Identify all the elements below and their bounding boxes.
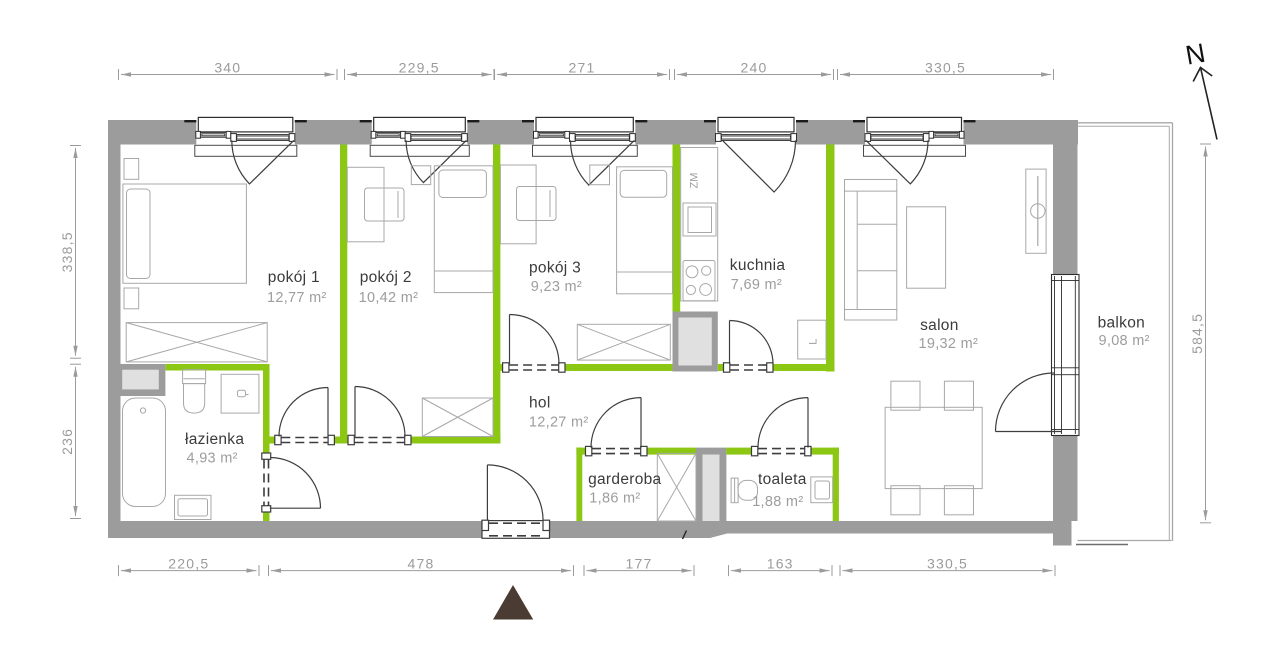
svg-text:12,27 m²: 12,27 m² bbox=[529, 415, 589, 431]
svg-text:salon: salon bbox=[920, 317, 959, 334]
svg-text:pokój 2: pokój 2 bbox=[360, 269, 412, 286]
svg-text:toaleta: toaleta bbox=[758, 471, 807, 488]
svg-text:9,23 m²: 9,23 m² bbox=[531, 279, 582, 295]
svg-text:478: 478 bbox=[408, 555, 435, 571]
svg-text:1,88 m²: 1,88 m² bbox=[752, 494, 803, 510]
svg-text:229,5: 229,5 bbox=[399, 59, 440, 75]
svg-text:łazienka: łazienka bbox=[185, 431, 244, 448]
svg-text:10,42 m²: 10,42 m² bbox=[359, 290, 419, 306]
svg-text:163: 163 bbox=[767, 555, 794, 571]
svg-text:240: 240 bbox=[741, 59, 768, 75]
svg-text:kuchnia: kuchnia bbox=[730, 257, 786, 274]
svg-text:4,93 m²: 4,93 m² bbox=[187, 451, 238, 467]
svg-text:236: 236 bbox=[59, 428, 75, 455]
svg-text:19,32 m²: 19,32 m² bbox=[919, 336, 979, 352]
svg-text:330,5: 330,5 bbox=[927, 555, 968, 571]
svg-text:9,08 m²: 9,08 m² bbox=[1099, 333, 1150, 349]
svg-text:330,5: 330,5 bbox=[925, 59, 966, 75]
svg-text:L: L bbox=[808, 339, 820, 345]
svg-text:pokój 3: pokój 3 bbox=[529, 260, 581, 277]
svg-text:ZM: ZM bbox=[689, 173, 701, 189]
svg-text:584,5: 584,5 bbox=[1189, 313, 1205, 354]
svg-text:220,5: 220,5 bbox=[168, 555, 209, 571]
svg-text:garderoba: garderoba bbox=[588, 471, 661, 488]
svg-text:balkon: balkon bbox=[1098, 315, 1145, 332]
svg-text:338,5: 338,5 bbox=[59, 231, 75, 272]
svg-text:340: 340 bbox=[214, 59, 241, 75]
svg-text:1,86 m²: 1,86 m² bbox=[589, 491, 640, 507]
svg-text:12,77 m²: 12,77 m² bbox=[267, 290, 327, 306]
svg-text:177: 177 bbox=[626, 555, 653, 571]
svg-text:hol: hol bbox=[529, 395, 551, 412]
svg-text:271: 271 bbox=[569, 59, 596, 75]
svg-text:7,69 m²: 7,69 m² bbox=[731, 277, 782, 293]
svg-text:pokój 1: pokój 1 bbox=[268, 269, 320, 286]
